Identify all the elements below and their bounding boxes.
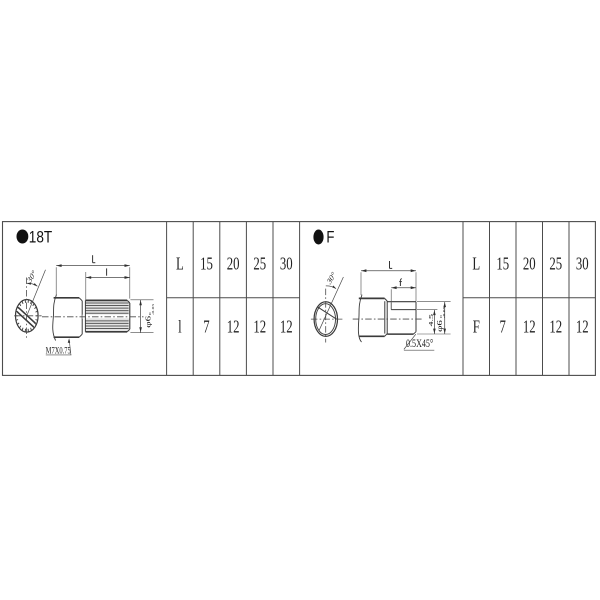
svg-text:0.5X45°: 0.5X45° <box>406 338 433 351</box>
svg-text:20: 20 <box>523 255 536 274</box>
svg-text:25: 25 <box>549 255 562 274</box>
svg-text:-0.05: -0.05 <box>443 306 447 318</box>
svg-text:7: 7 <box>500 317 507 336</box>
svg-text:30: 30 <box>280 255 293 274</box>
svg-text:12: 12 <box>253 317 266 336</box>
svg-text:F: F <box>326 228 334 247</box>
svg-text:M7X0.75: M7X0.75 <box>46 345 71 356</box>
svg-text:30°: 30° <box>326 270 338 287</box>
svg-text:φ6: φ6 <box>145 315 152 327</box>
svg-text:l: l <box>178 317 182 336</box>
svg-text:12: 12 <box>549 317 562 336</box>
svg-text:-0.05: -0.05 <box>152 303 156 315</box>
svg-text:30: 30 <box>576 255 589 274</box>
svg-text:20: 20 <box>227 255 240 274</box>
svg-text:12: 12 <box>227 317 240 336</box>
svg-text:18T: 18T <box>29 228 53 247</box>
svg-text:15: 15 <box>200 255 213 274</box>
svg-text:12: 12 <box>280 317 293 336</box>
svg-text:4.5: 4.5 <box>427 314 435 326</box>
svg-text:7: 7 <box>203 317 210 336</box>
svg-text:15: 15 <box>496 255 509 274</box>
svg-text:φ6: φ6 <box>436 320 443 332</box>
svg-text:L: L <box>176 255 184 274</box>
svg-text:12: 12 <box>576 317 589 336</box>
svg-text:L: L <box>472 255 480 274</box>
svg-text:30°: 30° <box>26 268 38 285</box>
svg-text:25: 25 <box>253 255 266 274</box>
svg-text:F: F <box>473 317 480 336</box>
svg-text:12: 12 <box>523 317 536 336</box>
